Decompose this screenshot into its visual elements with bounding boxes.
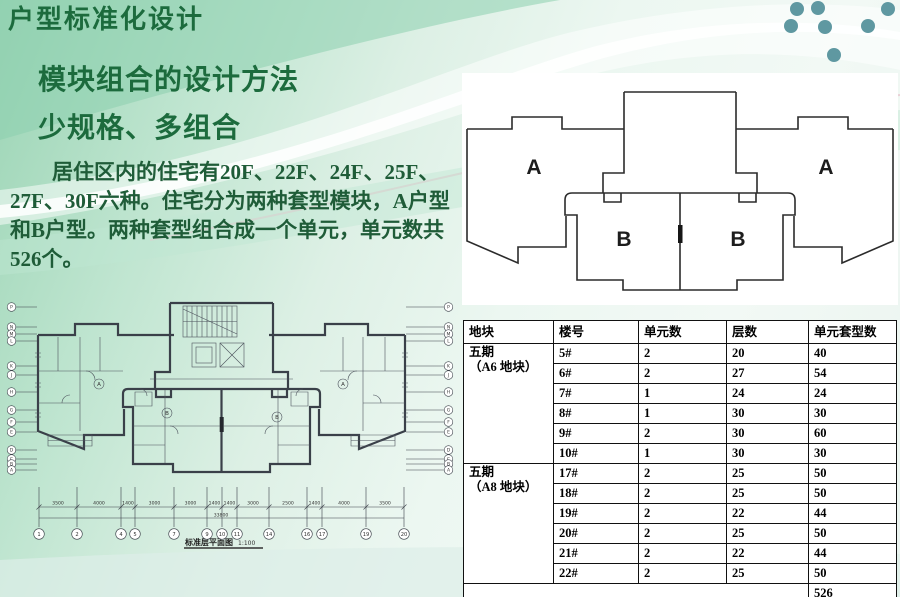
- grid-letter: D: [447, 448, 451, 454]
- plan-grid-annotations: 1245791011141617192035004000140030003000…: [7, 303, 453, 540]
- total-empty-cell: [464, 584, 809, 597]
- plan-walls: [38, 303, 405, 472]
- unit-diagram-panel: A A B B: [462, 73, 898, 305]
- plan-center-tick: [220, 417, 224, 432]
- grid-letter: J: [447, 373, 449, 379]
- col-header-floors: 层数: [727, 321, 809, 344]
- unit-outline: [467, 92, 893, 290]
- slide-canvas: 户型标准化设计 模块组合的设计方法 少规格、多组合 居住区内的住宅有20F、22…: [0, 0, 900, 597]
- plan-scale-label: 1:100: [238, 540, 255, 547]
- cell: 30: [727, 444, 809, 464]
- unit-label-a-left: A: [526, 156, 541, 179]
- grid-number: 20: [401, 532, 408, 538]
- grid-letter: E: [447, 430, 450, 436]
- dim-value: 1400: [309, 501, 321, 507]
- dim-total-value: 33800: [214, 513, 229, 519]
- table-header-row: 地块 楼号 单元数 层数 单元套型数: [464, 321, 897, 344]
- cell: 6#: [554, 364, 639, 384]
- cell: 2: [639, 504, 727, 524]
- floor-plan-svg: A A B B 标准层平面图 1:100 1245791011141617192…: [0, 295, 460, 565]
- cell: 24: [809, 384, 897, 404]
- col-header-units: 单元数: [639, 321, 727, 344]
- dim-value: 2500: [282, 501, 294, 507]
- table-row: 五期 （A6 地块） 5# 2 20 40: [464, 344, 897, 364]
- plan-marker-b-right: B: [275, 415, 279, 421]
- grid-number: 14: [266, 532, 273, 538]
- block-name: 五期: [469, 465, 548, 480]
- dim-value: 3000: [185, 501, 197, 507]
- cell: 44: [809, 504, 897, 524]
- plan-marker-b-left: B: [165, 411, 169, 417]
- cell: 18#: [554, 484, 639, 504]
- cell: 1: [639, 404, 727, 424]
- cell: 8#: [554, 404, 639, 424]
- grid-number: 11: [234, 532, 241, 538]
- cell: 2: [639, 344, 727, 364]
- cell: 2: [639, 564, 727, 584]
- cell: 20: [727, 344, 809, 364]
- grid-number: 1: [37, 532, 40, 538]
- cell: 1: [639, 444, 727, 464]
- grid-letter: D: [10, 448, 14, 454]
- cell: 2: [639, 364, 727, 384]
- grid-letter: H: [447, 390, 450, 396]
- cell: 2: [639, 544, 727, 564]
- table-panel: 地块 楼号 单元数 层数 单元套型数 五期 （A6 地块） 5# 2 20 40: [463, 320, 896, 597]
- col-header-building: 楼号: [554, 321, 639, 344]
- col-header-block: 地块: [464, 321, 554, 344]
- grid-number: 16: [304, 532, 311, 538]
- dot: [790, 2, 804, 16]
- cell: 44: [809, 544, 897, 564]
- cell: 27: [727, 364, 809, 384]
- cell: 30: [809, 444, 897, 464]
- units-table: 地块 楼号 单元数 层数 单元套型数 五期 （A6 地块） 5# 2 20 40: [463, 320, 897, 597]
- unit-label-b-right: B: [730, 228, 745, 251]
- total-value-cell: 526: [809, 584, 897, 597]
- cell: 50: [809, 484, 897, 504]
- block-cell-a6: 五期 （A6 地块）: [464, 344, 554, 464]
- cell: 50: [809, 564, 897, 584]
- dot: [818, 20, 832, 34]
- grid-letter: P: [10, 305, 13, 311]
- unit-label-b-left: B: [616, 228, 631, 251]
- dim-value: 3500: [52, 501, 64, 507]
- cell: 50: [809, 524, 897, 544]
- unit-label-a-right: A: [818, 156, 833, 179]
- grid-letter: G: [10, 408, 14, 414]
- dim-value: 3000: [149, 501, 161, 507]
- block-sub: （A6 地块）: [469, 360, 548, 375]
- plan-marker-a-right: A: [341, 382, 345, 388]
- grid-letter: F: [447, 420, 450, 426]
- dot: [827, 48, 841, 62]
- cell: 21#: [554, 544, 639, 564]
- grid-letter: G: [447, 408, 451, 414]
- cell: 60: [809, 424, 897, 444]
- cell: 7#: [554, 384, 639, 404]
- dim-value: 4000: [338, 501, 350, 507]
- plan-marker-a-left: A: [97, 382, 101, 388]
- grid-letter: J: [10, 373, 12, 379]
- dim-value: 1400: [122, 501, 134, 507]
- grid-number: 9: [205, 532, 208, 538]
- cell: 30: [809, 404, 897, 424]
- block-name: 五期: [469, 345, 548, 360]
- cell: 2: [639, 424, 727, 444]
- grid-number: 5: [133, 532, 136, 538]
- table-row: 五期 （A8 地块） 17# 2 25 50: [464, 464, 897, 484]
- col-header-unit-types: 单元套型数: [809, 321, 897, 344]
- cell: 1: [639, 384, 727, 404]
- cell: 10#: [554, 444, 639, 464]
- grid-number: 2: [75, 532, 78, 538]
- dim-value: 3000: [247, 501, 259, 507]
- cell: 25: [727, 524, 809, 544]
- cell: 30: [727, 404, 809, 424]
- subtitle-method: 模块组合的设计方法: [38, 62, 299, 98]
- dot: [861, 19, 875, 33]
- dim-value: 1400: [209, 501, 221, 507]
- cell: 22#: [554, 564, 639, 584]
- cell: 30: [727, 424, 809, 444]
- cell: 22: [727, 504, 809, 524]
- cell: 2: [639, 464, 727, 484]
- cell: 2: [639, 524, 727, 544]
- grid-number: 19: [363, 532, 370, 538]
- corner-dots-decoration: [780, 0, 900, 70]
- table-total-row: 526: [464, 584, 897, 597]
- cell: 19#: [554, 504, 639, 524]
- unit-center-tick: [678, 225, 683, 243]
- grid-number: 7: [172, 532, 175, 538]
- body-paragraph: 居住区内的住宅有20F、22F、24F、25F、27F、30F六种。住宅分为两种…: [10, 158, 458, 274]
- dim-value: 3500: [379, 501, 391, 507]
- subtitle-motto: 少规格、多组合: [38, 110, 241, 146]
- cell: 2: [639, 484, 727, 504]
- dot: [784, 19, 798, 33]
- cell: 54: [809, 364, 897, 384]
- cell: 40: [809, 344, 897, 364]
- cell: 24: [727, 384, 809, 404]
- cell: 20#: [554, 524, 639, 544]
- cell: 9#: [554, 424, 639, 444]
- grid-letter: F: [10, 420, 13, 426]
- grid-letter: E: [10, 430, 13, 436]
- dot: [881, 2, 895, 16]
- cell: 17#: [554, 464, 639, 484]
- grid-letter: H: [10, 390, 13, 396]
- page-title: 户型标准化设计: [8, 2, 204, 36]
- block-cell-a8: 五期 （A8 地块）: [464, 464, 554, 584]
- cell: 22: [727, 544, 809, 564]
- dim-value: 1400: [224, 501, 236, 507]
- cell: 50: [809, 464, 897, 484]
- dim-value: 4000: [93, 501, 105, 507]
- cell: 25: [727, 564, 809, 584]
- block-sub: （A8 地块）: [469, 480, 548, 495]
- cell: 25: [727, 464, 809, 484]
- grid-number: 17: [319, 532, 326, 538]
- unit-diagram: A A B B: [462, 73, 898, 305]
- cell: 5#: [554, 344, 639, 364]
- grid-number: 10: [219, 532, 226, 538]
- dot: [811, 1, 825, 15]
- grid-letter: P: [447, 305, 450, 311]
- cell: 25: [727, 484, 809, 504]
